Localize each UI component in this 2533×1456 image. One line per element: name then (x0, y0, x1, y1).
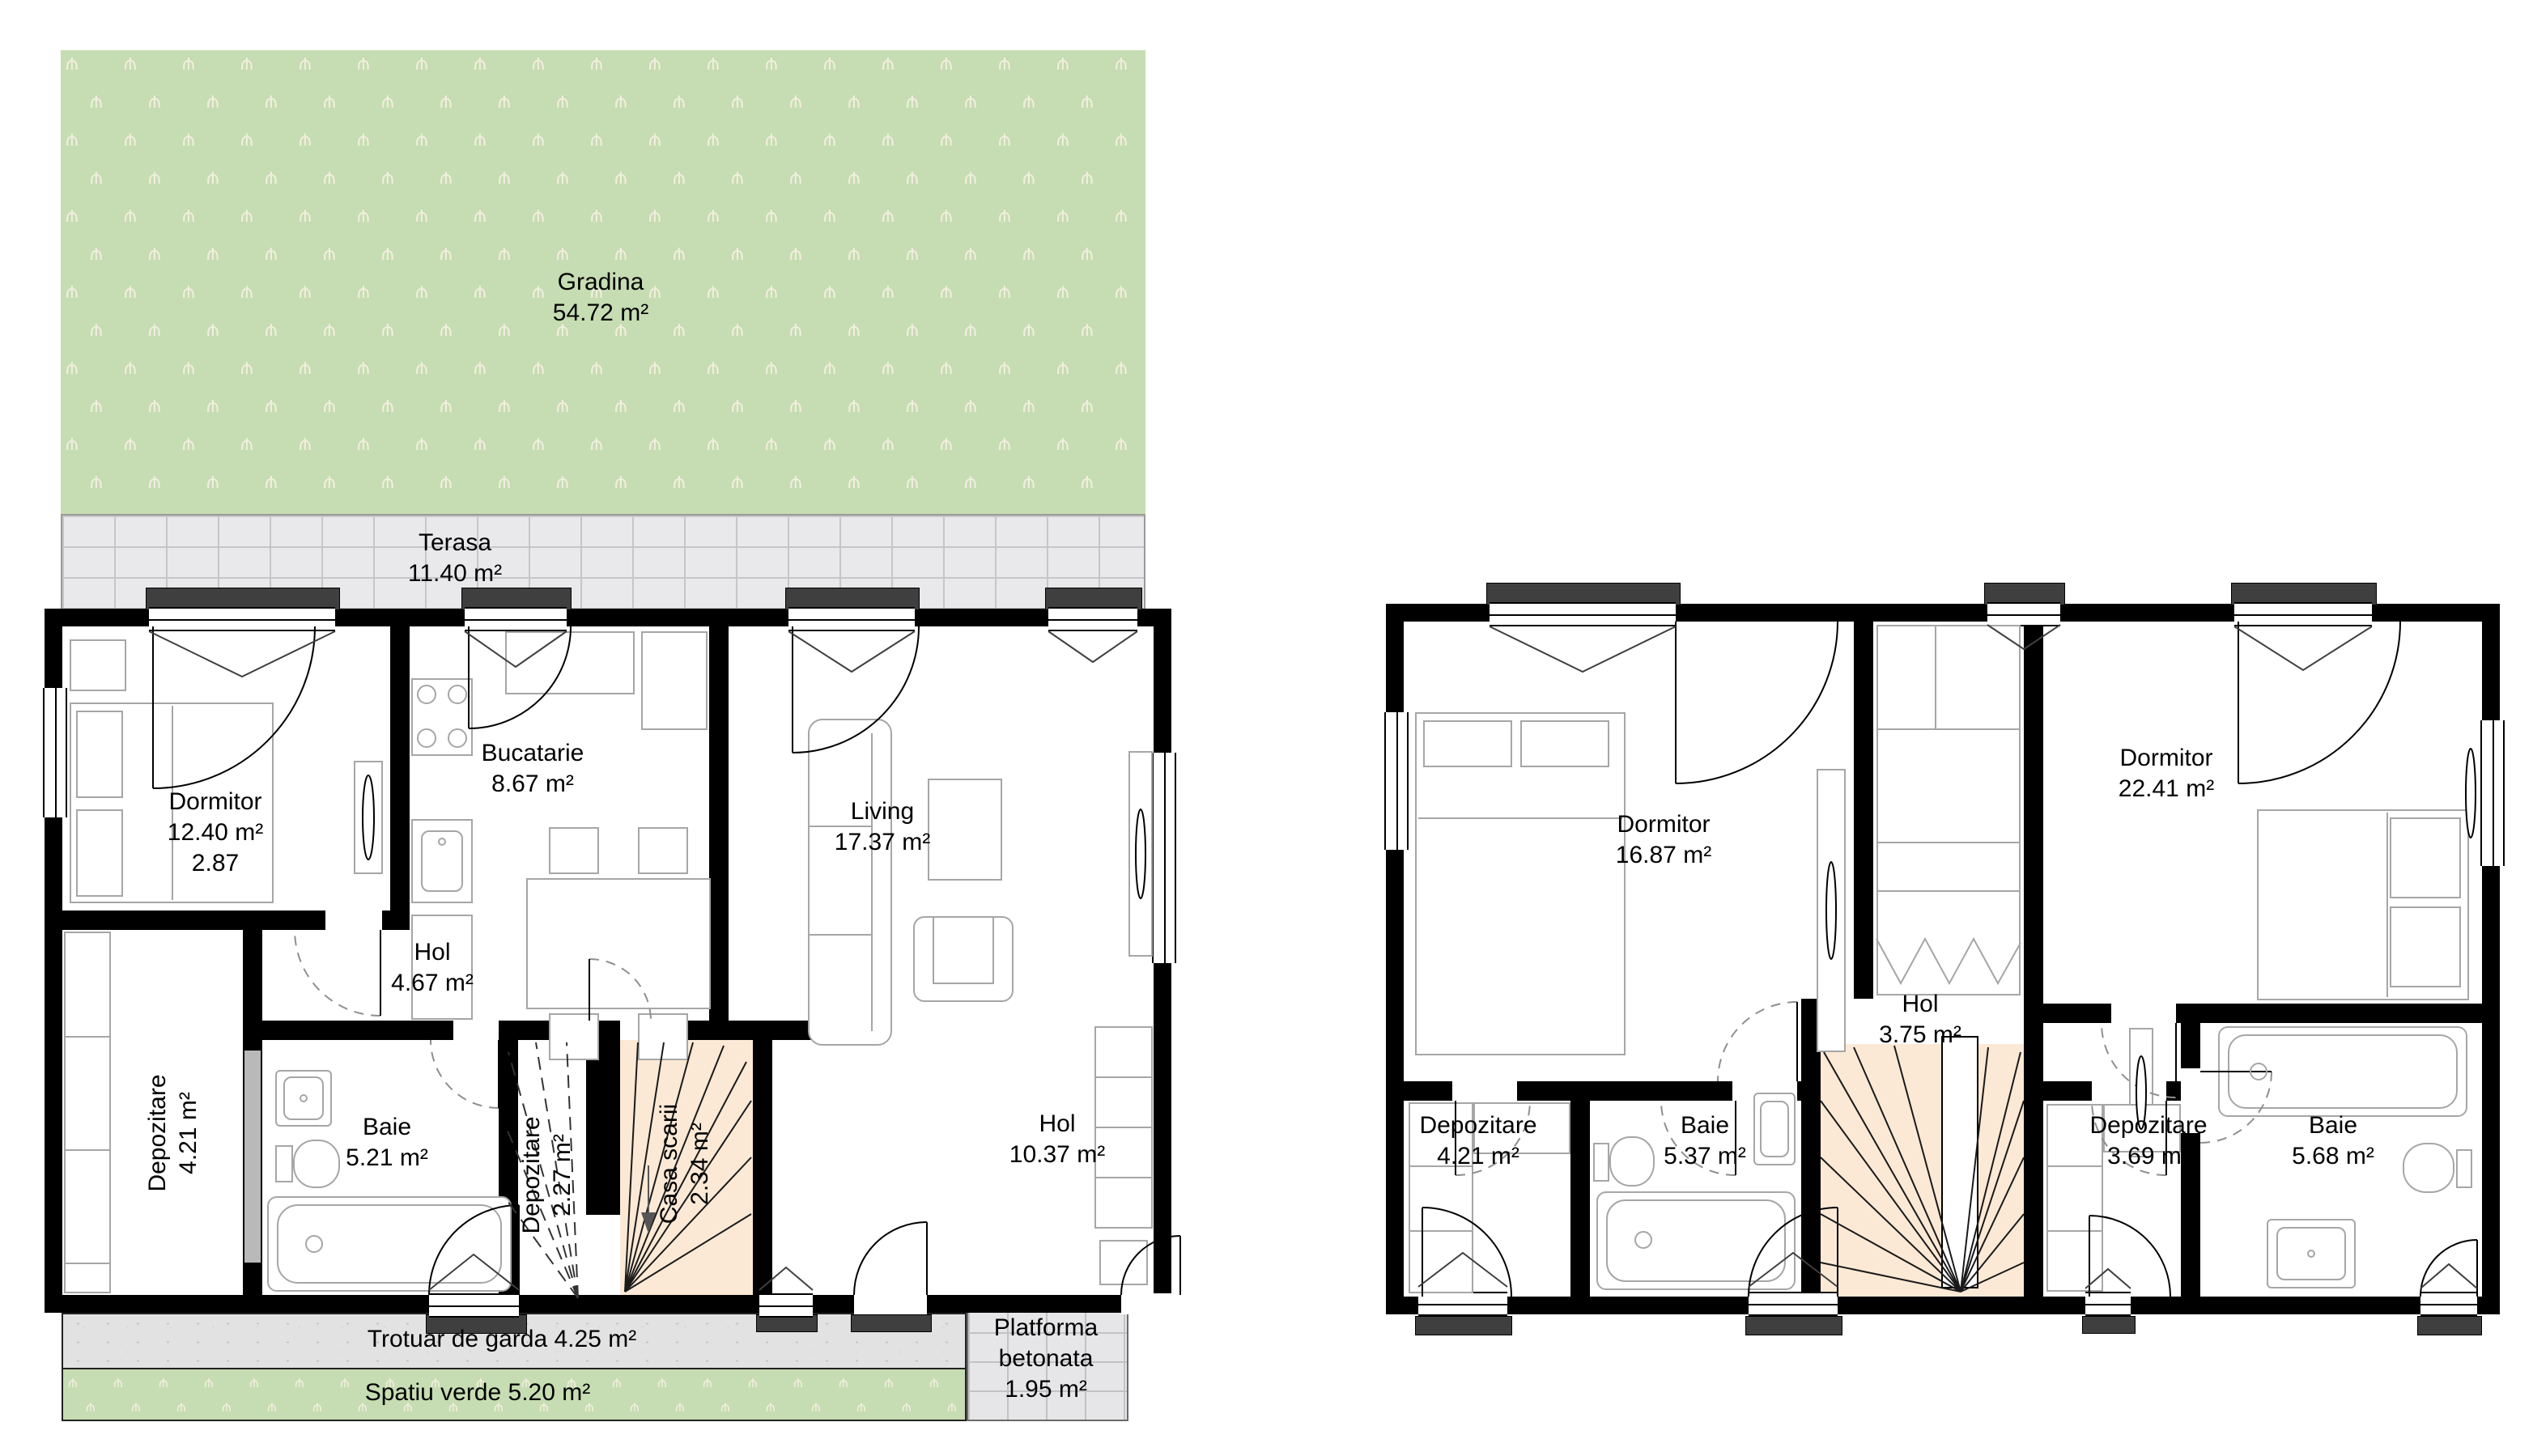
room-label-depozitare-stanga: Depozitare 4.21 m² (1349, 1110, 1608, 1172)
zone-name: Platforma betonata (965, 1313, 1127, 1374)
room-label-dormitor-parter: Dormitor 12.40 m² 2.87 (86, 787, 345, 879)
room-area: 5.21 m² (257, 1143, 516, 1174)
room-label-casa-scarii: Casa scarii 2.34 m² (654, 1034, 716, 1293)
room-label-hol-parter: Hol 10.37 m² (928, 1109, 1187, 1170)
room-label-bucatarie: Bucatarie 8.67 m² (403, 738, 662, 800)
room-name: Casa scarii (654, 1034, 685, 1293)
room-label-hol-parter-mic: Hol 4.67 m² (303, 937, 562, 999)
room-height: 2.87 (86, 848, 345, 879)
room-name: Dormitor (1534, 809, 1793, 840)
room-area: 54.72 m² (471, 298, 730, 329)
room-label-dormitor-stanga: Dormitor 16.87 m² (1534, 809, 1793, 871)
room-name: Living (753, 796, 1012, 827)
label-trotuar: Trotuar de garda 4.25 m² (219, 1324, 785, 1355)
zone-area: 5.20 m² (508, 1379, 591, 1406)
room-area: 2.27 m² (547, 1046, 578, 1305)
room-area: 8.67 m² (403, 769, 662, 800)
room-label-depozitare-parter: Depozitare 4.21 m² (142, 1004, 204, 1263)
plan-linework (0, 0, 2533, 1456)
room-label-baie-dreapta: Baie 5.68 m² (2204, 1110, 2463, 1172)
room-area: 5.37 m² (1575, 1141, 1834, 1172)
room-area: 10.37 m² (928, 1140, 1187, 1170)
room-area: 11.40 m² (325, 558, 584, 589)
room-name: Depozitare (1349, 1110, 1608, 1141)
room-name: Terasa (325, 528, 584, 558)
room-area: 16.87 m² (1534, 840, 1793, 871)
room-name: Hol (303, 937, 562, 968)
room-label-living: Living 17.37 m² (753, 796, 1012, 858)
room-label-baie-stanga: Baie 5.37 m² (1575, 1110, 1834, 1172)
floor-plan-page: ΨΨΨΨΨΨΨΨΨΨΨΨΨΨΨΨΨΨΨΨΨΨΨΨΨΨΨΨΨΨΨΨΨΨΨΨΨΨΨΨ… (0, 0, 2533, 1456)
room-area: 2.34 m² (685, 1034, 716, 1293)
room-label-baie-parter: Baie 5.21 m² (257, 1112, 516, 1174)
room-name: Gradina (471, 267, 730, 298)
room-name: Baie (2204, 1110, 2463, 1141)
room-label-dormitor-dreapta: Dormitor 22.41 m² (2037, 743, 2296, 804)
label-platforma: Platforma betonata 1.95 m² (965, 1313, 1127, 1405)
room-area: 12.40 m² (86, 817, 345, 848)
label-spatiu-verde: Spatiu verde 5.20 m² (194, 1377, 761, 1408)
room-name: Depozitare (516, 1046, 547, 1305)
zone-area: 1.95 m² (965, 1374, 1127, 1405)
room-label-terasa: Terasa 11.40 m² (325, 528, 584, 589)
room-name: Dormitor (2037, 743, 2296, 774)
room-name: Baie (1575, 1110, 1834, 1141)
room-name: Depozitare (142, 1004, 173, 1263)
room-area: 5.68 m² (2204, 1141, 2463, 1172)
room-area: 4.21 m² (1349, 1141, 1608, 1172)
room-area: 17.37 m² (753, 827, 1012, 858)
room-area: 3.75 m² (1791, 1020, 2050, 1051)
room-area: 4.21 m² (173, 1004, 204, 1263)
room-name: Baie (257, 1112, 516, 1143)
room-name: Hol (928, 1109, 1187, 1140)
room-label-gradina: Gradina 54.72 m² (471, 267, 730, 329)
zone-name: Spatiu verde (365, 1379, 501, 1406)
room-name: Dormitor (86, 787, 345, 817)
room-label-hol-etaj: Hol 3.75 m² (1791, 989, 2050, 1051)
room-area: 22.41 m² (2037, 774, 2296, 804)
room-name: Hol (1791, 989, 2050, 1020)
zone-name: Trotuar de garda (368, 1326, 547, 1352)
zone-area: 4.25 m² (554, 1326, 636, 1352)
room-area: 4.67 m² (303, 968, 562, 999)
room-label-depozitare-scara: Depozitare 2.27 m² (516, 1046, 578, 1305)
room-name: Bucatarie (403, 738, 662, 769)
